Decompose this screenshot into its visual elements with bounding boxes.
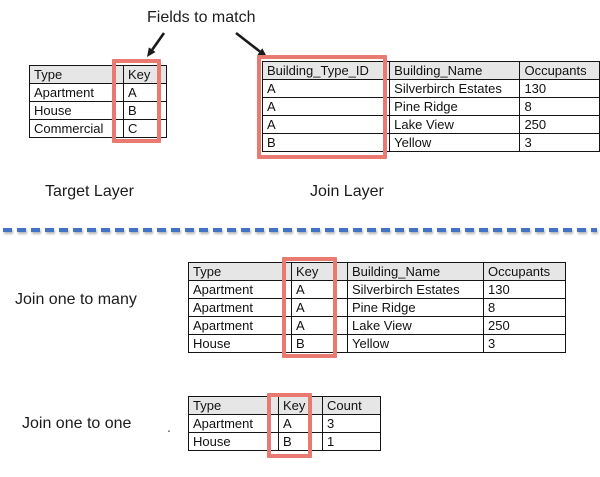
one-to-many-result-table: TypeKeyBuilding_NameOccupantsApartmentAS… — [188, 262, 566, 353]
column-header: Building_Name — [348, 263, 484, 281]
table-cell: Yellow — [348, 335, 484, 353]
table-cell: 3 — [520, 134, 600, 152]
column-header: Type — [189, 397, 279, 415]
table-cell: 8 — [520, 98, 600, 116]
table-row: ApartmentALake View250 — [189, 317, 566, 335]
table-cell: 130 — [520, 80, 600, 98]
table-cell: Pine Ridge — [348, 299, 484, 317]
target-key-highlight — [112, 59, 161, 143]
column-header: Occupants — [520, 62, 600, 80]
column-header: Occupants — [484, 263, 566, 281]
column-header: Count — [323, 397, 381, 415]
fields-to-match-label: Fields to match — [147, 9, 255, 27]
table-cell: Apartment — [189, 415, 279, 433]
table-cell: House — [30, 102, 124, 120]
join-one-to-one-label: Join one to one — [22, 415, 131, 433]
table-cell: 3 — [323, 415, 381, 433]
table-cell: Pine Ridge — [390, 98, 520, 116]
table-cell: Apartment — [189, 299, 292, 317]
join-id-highlight — [257, 55, 387, 159]
table-cell: 1 — [323, 433, 381, 451]
table-row: HouseBYellow3 — [189, 335, 566, 353]
table-cell: Lake View — [390, 116, 520, 134]
one-to-one-key-highlight — [267, 393, 312, 458]
table-row: ApartmentASilverbirch Estates130 — [189, 281, 566, 299]
table-cell: Apartment — [189, 317, 292, 335]
one-to-many-key-highlight — [282, 257, 337, 358]
table-cell: Commercial — [30, 120, 124, 138]
table-cell: Yellow — [390, 134, 520, 152]
target-layer-label: Target Layer — [45, 183, 134, 201]
table-cell: Silverbirch Estates — [348, 281, 484, 299]
join-one-to-many-label: Join one to many — [15, 291, 137, 309]
table-cell: 3 — [484, 335, 566, 353]
table-cell: 250 — [484, 317, 566, 335]
arrow-down-left-icon — [147, 33, 164, 57]
table-cell: House — [189, 433, 279, 451]
join-layer-label: Join Layer — [310, 183, 384, 201]
table-cell: 130 — [484, 281, 566, 299]
table-cell: House — [189, 335, 292, 353]
header-row: TypeKeyBuilding_NameOccupants — [189, 263, 566, 281]
table-cell: Silverbirch Estates — [390, 80, 520, 98]
table-row: ApartmentAPine Ridge8 — [189, 299, 566, 317]
column-header: Building_Name — [390, 62, 520, 80]
join-types-diagram: Fields to match TypeKeyApartmentAHouseBC… — [0, 0, 600, 477]
table-cell: Apartment — [30, 84, 124, 102]
table-cell: Lake View — [348, 317, 484, 335]
table-cell: Apartment — [189, 281, 292, 299]
table-cell: 8 — [484, 299, 566, 317]
table-cell: 250 — [520, 116, 600, 134]
stray-period: . — [167, 419, 171, 435]
column-header: Type — [189, 263, 292, 281]
column-header: Type — [30, 66, 124, 84]
arrow-down-right-icon — [236, 33, 267, 57]
